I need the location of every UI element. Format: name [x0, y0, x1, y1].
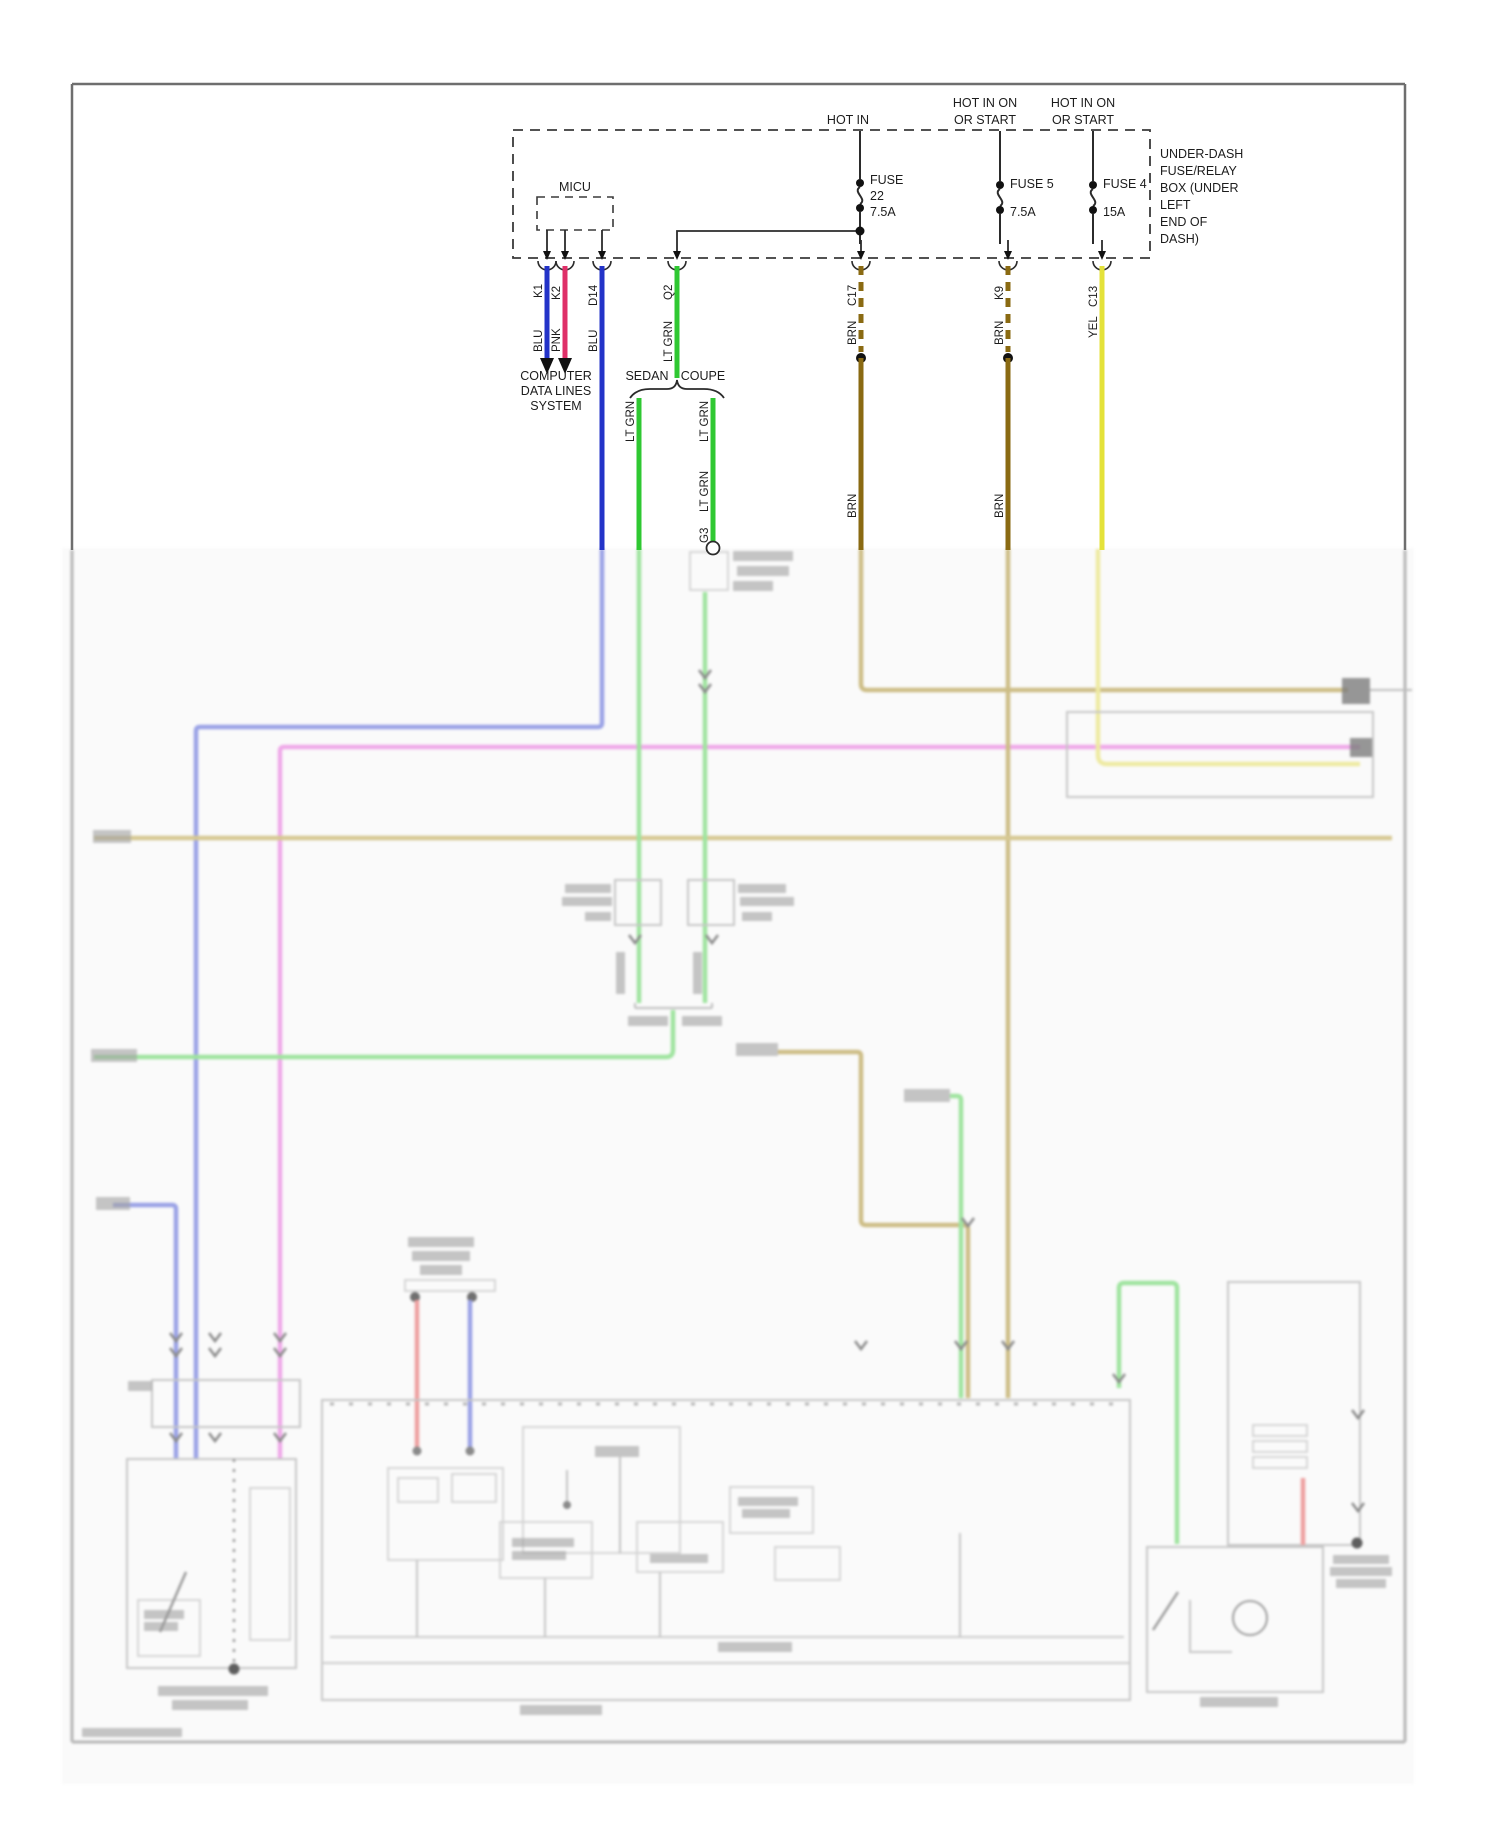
destination-line: COMPUTER: [520, 369, 592, 383]
illegible-label: [738, 1497, 798, 1506]
illegible-caption: [1200, 1697, 1278, 1707]
fuse-terminal: [996, 206, 1004, 214]
illegible-label: [738, 884, 786, 893]
illegible-caption: [158, 1686, 268, 1696]
connector-arrow: [598, 240, 606, 260]
fuse-rating: 7.5A: [1010, 205, 1036, 219]
wire-color-label: BRN: [994, 321, 1006, 345]
fuse-element: [998, 189, 1003, 206]
illegible-label: [650, 1554, 708, 1563]
wire-color-label: LT GRN: [625, 401, 637, 442]
illegible-caption: [520, 1705, 602, 1715]
wire-color-label: LT GRN: [699, 471, 711, 512]
illegible-label: [904, 1089, 950, 1102]
hot-in-on-label: HOT IN ON: [953, 96, 1017, 110]
illegible-label: [742, 912, 772, 921]
fuse-label: FUSE: [870, 173, 903, 187]
illegible-label: [733, 581, 773, 591]
fuse-box-note-line: BOX (UNDER: [1160, 181, 1238, 195]
computer-data-lines-destination: COMPUTER DATA LINES SYSTEM: [520, 369, 592, 413]
hot-in-label: HOT IN: [827, 113, 869, 127]
illegible-label: [420, 1265, 462, 1275]
connector-arrow: [673, 240, 681, 260]
pin-label-q2: Q2: [663, 285, 675, 300]
q2-feed-wire: [677, 231, 860, 240]
illegible-part-number: [82, 1728, 182, 1737]
fuse-label: 22: [870, 189, 884, 203]
wire-color-label-lower: BRN: [847, 494, 859, 518]
junction-dot-faded: [1352, 1538, 1363, 1549]
illegible-rotated-label: [616, 952, 625, 994]
pin-label-d14: D14: [588, 284, 600, 306]
illegible-label: [562, 897, 612, 906]
wire-color-label: YEL: [1088, 316, 1100, 338]
pin-label-c17: C17: [847, 285, 859, 306]
illegible-label: [128, 1381, 152, 1391]
illegible-label: [144, 1610, 184, 1619]
faded-film: [62, 548, 1414, 1784]
illegible-label: [585, 912, 611, 921]
wiring-diagram-page: UNDER-DASH FUSE/RELAY BOX (UNDER LEFT EN…: [0, 0, 1500, 1828]
junction-dot-faded: [466, 1447, 475, 1456]
fuse-5: FUSE 5 7.5A: [996, 131, 1054, 244]
wire-color-label-lower: BRN: [994, 494, 1006, 518]
fuse-terminal: [856, 179, 864, 187]
illegible-label: [628, 1016, 668, 1026]
fuse-box-note-line: UNDER-DASH: [1160, 147, 1243, 161]
junction-dot-faded: [413, 1447, 422, 1456]
junction-dot: [856, 227, 865, 236]
wire-color-label: BRN: [847, 321, 859, 345]
fuse-terminal: [1089, 206, 1097, 214]
fuse-box-note-line: LEFT: [1160, 198, 1191, 212]
wire-color-label: BLU: [533, 330, 545, 352]
fuse-box-note: UNDER-DASH FUSE/RELAY BOX (UNDER LEFT EN…: [1160, 147, 1243, 246]
fuse-terminal: [856, 204, 864, 212]
fuse-box-note-line: END OF: [1160, 215, 1208, 229]
illegible-label: [91, 1049, 137, 1062]
fuse-label: FUSE 4: [1103, 177, 1147, 191]
fuse-4: FUSE 4 15A: [1089, 131, 1147, 244]
wiring-diagram: UNDER-DASH FUSE/RELAY BOX (UNDER LEFT EN…: [0, 0, 1500, 1828]
illegible-label: [412, 1251, 470, 1261]
pin-label-k1: K1: [533, 284, 545, 298]
or-start-label: OR START: [954, 113, 1016, 127]
illegible-label: [733, 551, 793, 561]
destination-line: DATA LINES: [521, 384, 591, 398]
wire-color-label: BLU: [588, 330, 600, 352]
illegible-label: [718, 1642, 792, 1652]
connector-arrow: [857, 240, 865, 260]
hot-in-on-label: HOT IN ON: [1051, 96, 1115, 110]
connector-arrow: [543, 240, 551, 260]
fuse-element: [1091, 189, 1096, 206]
micu-label: MICU: [559, 180, 591, 194]
illegible-label: [736, 1043, 778, 1056]
pin-label-k9: K9: [994, 286, 1006, 300]
illegible-label: [595, 1446, 639, 1457]
destination-line: SYSTEM: [530, 399, 581, 413]
connector-sockets: [538, 261, 1111, 270]
illegible-label: [742, 1509, 790, 1518]
micu-stubs: [547, 230, 602, 240]
pnk-edge-connector: [1350, 738, 1374, 757]
wire-color-label: LT GRN: [699, 401, 711, 442]
connector-arrow: [1098, 240, 1106, 260]
connector-arrow: [561, 240, 569, 260]
fuse-rating: 15A: [1103, 205, 1126, 219]
illegible-label: [565, 884, 611, 893]
illegible-label: [1336, 1579, 1386, 1588]
pin-label-k2: K2: [551, 286, 563, 300]
fuse-22: FUSE 22 7.5A: [856, 131, 903, 244]
fuse-terminal: [996, 181, 1004, 189]
fuse-element: [858, 187, 863, 204]
sedan-label: SEDAN: [625, 369, 668, 383]
wire-color-label: LT GRN: [663, 321, 675, 362]
illegible-label: [512, 1538, 574, 1547]
illegible-label: [408, 1237, 474, 1247]
illegible-label: [512, 1551, 566, 1560]
illegible-label: [96, 1197, 130, 1210]
coupe-label: COUPE: [681, 369, 725, 383]
fuse-rating: 7.5A: [870, 205, 896, 219]
illegible-caption: [172, 1700, 248, 1710]
brn-edge-connector: [1342, 678, 1370, 704]
illegible-label: [682, 1016, 722, 1026]
connector-arrow: [1004, 240, 1012, 260]
pin-label-g3: G3: [699, 528, 711, 543]
illegible-label: [1330, 1567, 1392, 1576]
fuse-box-note-line: DASH): [1160, 232, 1199, 246]
power-distribution-section: UNDER-DASH FUSE/RELAY BOX (UNDER LEFT EN…: [72, 84, 1405, 555]
fuse-terminal: [1089, 181, 1097, 189]
fuse-box-note-line: FUSE/RELAY: [1160, 164, 1238, 178]
illegible-label: [93, 830, 131, 843]
illegible-rotated-label: [693, 952, 702, 994]
fuse-label: FUSE 5: [1010, 177, 1054, 191]
illegible-label: [740, 897, 794, 906]
junction-dot-faded: [563, 1501, 571, 1509]
wire-color-label: PNK: [551, 328, 563, 352]
illegible-label: [1333, 1555, 1389, 1564]
or-start-label: OR START: [1052, 113, 1114, 127]
faded-lower-section: [62, 548, 1414, 1784]
ground-dot-faded: [229, 1664, 240, 1675]
pin-label-c13: C13: [1088, 286, 1100, 307]
illegible-label: [737, 566, 789, 576]
micu-box: [537, 197, 613, 230]
connector-arrows: [543, 240, 1106, 260]
fuse-relay-box: [513, 130, 1150, 258]
